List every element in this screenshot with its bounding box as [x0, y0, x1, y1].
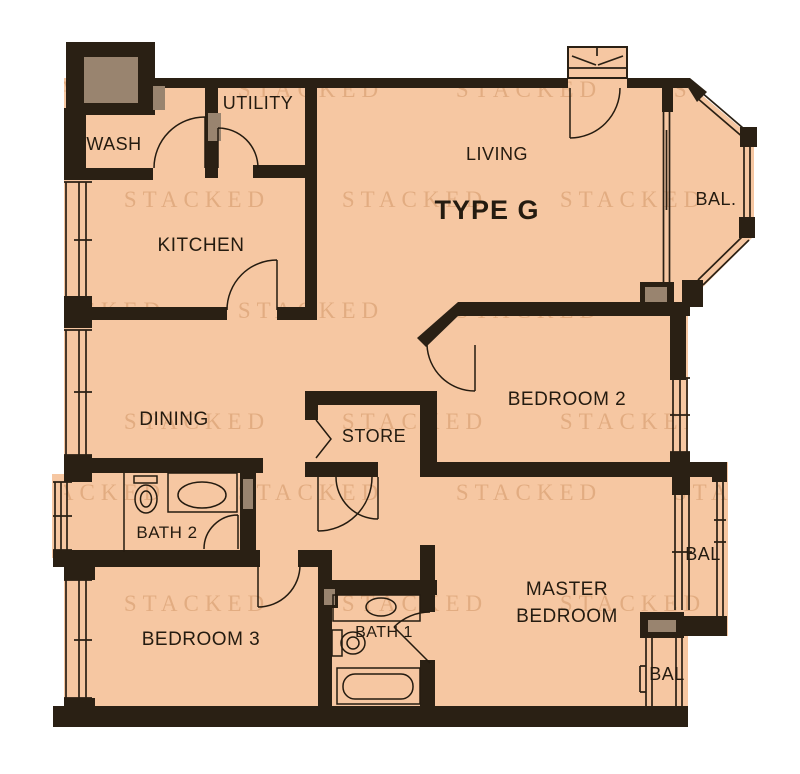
wall-corner	[712, 462, 727, 482]
wall-segment	[305, 405, 318, 420]
floor-plan-svg: STACKEDSTACKEDSTACKEDSTACKEDSTACKEDSTACK…	[0, 0, 800, 774]
watermark-text: STACKED	[124, 187, 270, 212]
room-label-wash: WASH	[86, 134, 141, 154]
wall-segment	[672, 477, 690, 495]
wall-segment	[64, 458, 263, 473]
wall-segment	[670, 452, 690, 464]
room-label-bedroom3: BEDROOM 3	[142, 629, 261, 650]
room-label-kitchen: KITCHEN	[158, 235, 245, 256]
wall-corner	[64, 698, 95, 726]
wall-pier	[64, 296, 92, 328]
column-fill	[645, 287, 667, 302]
wall-bay-corner	[682, 280, 703, 307]
wall-segment	[253, 165, 307, 178]
watermark-text: STACKED	[560, 409, 706, 434]
shaft-bath2	[243, 479, 253, 509]
room-label-living: LIVING	[466, 144, 528, 164]
wall-segment	[420, 660, 435, 706]
floor-plan-page: STACKEDSTACKEDSTACKEDSTACKEDSTACKEDSTACK…	[0, 0, 800, 774]
watermark-text: STACKED	[674, 480, 800, 505]
room-label-master-line2: BEDROOM	[516, 606, 618, 627]
plan-type-title: TYPE G	[434, 195, 539, 225]
watermark-text: STACKED	[238, 480, 384, 505]
wall-corner	[64, 552, 95, 580]
room-label-dining: DINING	[139, 409, 209, 430]
wall-bay-corner	[739, 217, 755, 238]
room-label-balcony-living: BAL.	[695, 189, 736, 209]
watermark-text: STACKED	[124, 591, 270, 616]
wall-segment	[64, 168, 153, 180]
room-label-balcony-lower: BAL	[649, 664, 685, 684]
wall-segment	[662, 78, 673, 112]
wall-segment	[670, 316, 686, 380]
watermark-text: STACKED	[560, 187, 706, 212]
room-label-master-line1: MASTER	[526, 579, 608, 600]
shaft-inner	[84, 57, 138, 103]
wall-store-top	[305, 391, 437, 405]
shaft-small	[208, 113, 221, 141]
room-label-utility: UTILITY	[223, 93, 294, 113]
wall-segment	[305, 82, 317, 320]
room-label-bath1: BATH 1	[355, 624, 413, 641]
wall-segment	[420, 545, 435, 612]
wall-segment	[64, 108, 86, 172]
room-label-bath2: BATH 2	[136, 523, 197, 542]
wall-bottom	[53, 706, 688, 727]
wall-segment	[423, 462, 727, 477]
window-bedroom2	[670, 378, 690, 452]
room-label-bedroom2: BEDROOM 2	[508, 389, 627, 410]
wall-segment	[684, 616, 727, 636]
wall-segment	[277, 307, 317, 320]
wall-segment	[305, 462, 378, 477]
wall-store-right	[420, 391, 437, 477]
wall-segment	[90, 307, 227, 320]
watermark-text: STACKED	[456, 480, 602, 505]
shaft-small	[153, 86, 165, 110]
column-fill	[648, 620, 676, 632]
wall-segment	[627, 78, 688, 88]
watermark-text: STACKED	[674, 702, 800, 727]
wall-segment	[318, 550, 332, 706]
room-label-store: STORE	[342, 426, 406, 446]
room-label-balcony-upper: BAL	[685, 544, 721, 564]
